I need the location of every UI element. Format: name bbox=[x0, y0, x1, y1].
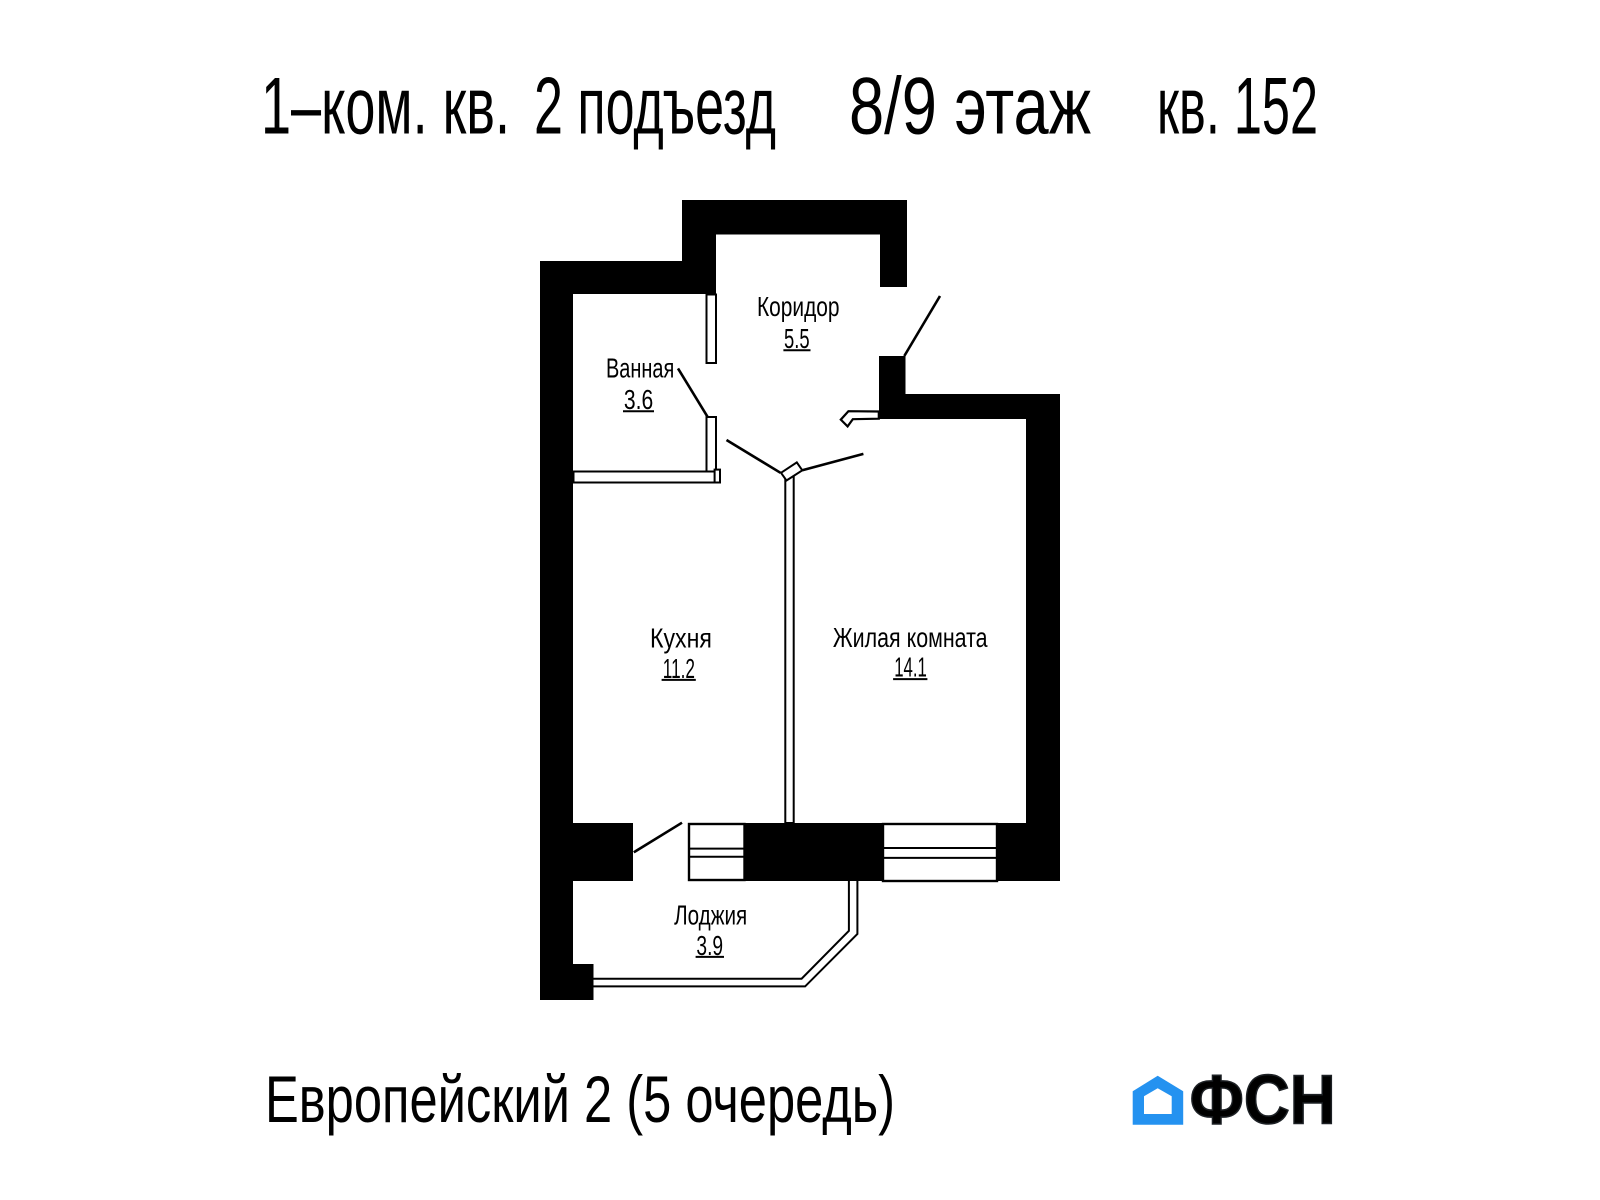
svg-text:Ванная: Ванная bbox=[606, 353, 674, 384]
svg-text:2 подъезд: 2 подъезд bbox=[534, 62, 776, 152]
svg-text:кв. 152: кв. 152 bbox=[1157, 62, 1318, 152]
svg-text:Жилая комната: Жилая комната bbox=[833, 622, 988, 653]
svg-text:Коридор: Коридор bbox=[757, 291, 840, 322]
svg-text:ФСН: ФСН bbox=[1190, 1061, 1336, 1139]
svg-text:14.1: 14.1 bbox=[894, 651, 927, 682]
svg-text:Кухня: Кухня bbox=[650, 622, 712, 653]
svg-text:Европейский 2 (5 очередь): Европейский 2 (5 очередь) bbox=[265, 1062, 895, 1136]
svg-text:8/9 этаж: 8/9 этаж bbox=[849, 62, 1091, 152]
svg-text:1–ком. кв.: 1–ком. кв. bbox=[261, 62, 510, 152]
svg-text:Лоджия: Лоджия bbox=[674, 900, 747, 931]
